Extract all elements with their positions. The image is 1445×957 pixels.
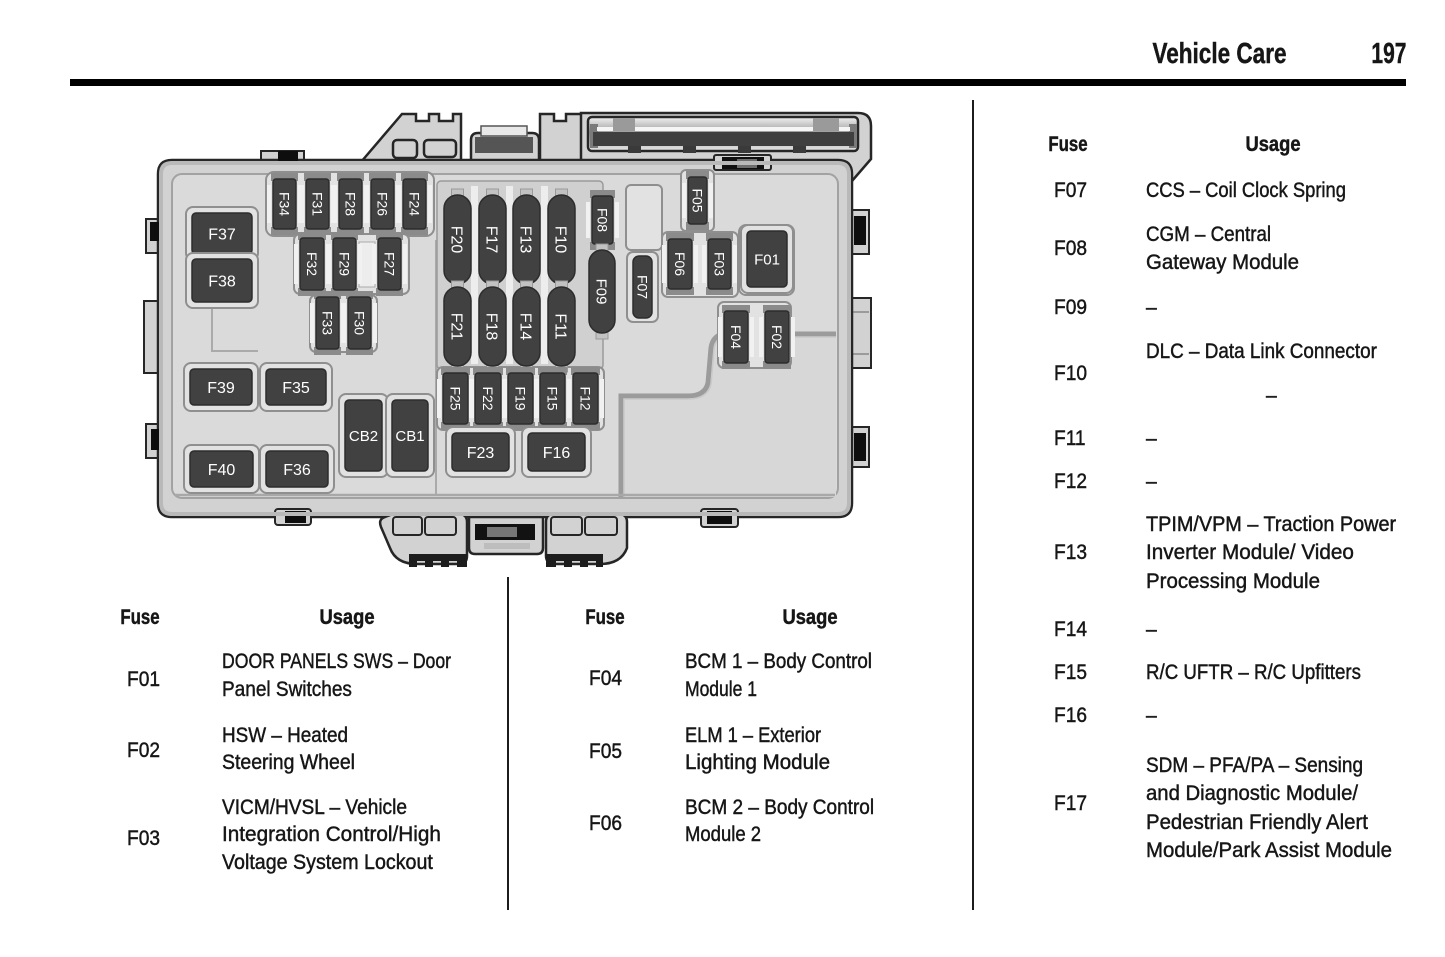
svg-text:F25: F25 <box>447 386 463 410</box>
svg-text:F21: F21 <box>448 313 465 341</box>
svg-text:F36: F36 <box>283 462 311 479</box>
svg-text:CB1: CB1 <box>395 428 424 445</box>
svg-text:F38: F38 <box>208 273 236 290</box>
svg-text:F22: F22 <box>480 386 496 410</box>
svg-text:F10: F10 <box>552 226 569 254</box>
svg-text:F04: F04 <box>728 325 744 349</box>
svg-text:F27: F27 <box>381 252 397 276</box>
svg-text:F08: F08 <box>594 208 610 232</box>
svg-text:F11: F11 <box>552 313 569 339</box>
svg-text:F15: F15 <box>544 386 560 410</box>
svg-text:F39: F39 <box>207 380 235 397</box>
svg-text:F06: F06 <box>672 252 688 276</box>
svg-text:F31: F31 <box>309 192 325 216</box>
svg-text:F16: F16 <box>543 445 571 462</box>
svg-text:F32: F32 <box>304 252 320 276</box>
svg-text:F23: F23 <box>467 445 495 462</box>
svg-text:F03: F03 <box>711 252 727 276</box>
svg-text:F12: F12 <box>577 386 593 410</box>
svg-text:F01: F01 <box>754 251 780 268</box>
svg-text:F02: F02 <box>769 325 785 349</box>
svg-text:F20: F20 <box>448 226 465 254</box>
svg-text:F37: F37 <box>208 226 236 243</box>
svg-text:F24: F24 <box>406 192 422 216</box>
svg-text:F07: F07 <box>634 275 650 299</box>
svg-text:F40: F40 <box>208 462 236 479</box>
svg-text:F17: F17 <box>483 226 500 254</box>
svg-text:F30: F30 <box>351 311 367 335</box>
svg-text:F18: F18 <box>483 313 500 341</box>
svg-text:CB2: CB2 <box>349 428 378 445</box>
svg-text:F35: F35 <box>282 380 310 397</box>
svg-text:F19: F19 <box>512 386 528 410</box>
svg-text:F14: F14 <box>517 313 534 341</box>
svg-text:F09: F09 <box>593 279 610 305</box>
svg-text:F29: F29 <box>336 252 352 276</box>
svg-text:F28: F28 <box>342 192 358 216</box>
svg-text:F13: F13 <box>517 226 534 254</box>
svg-text:F05: F05 <box>689 188 705 212</box>
svg-text:F26: F26 <box>374 192 390 216</box>
svg-text:F34: F34 <box>276 192 292 216</box>
svg-text:F33: F33 <box>319 311 335 335</box>
